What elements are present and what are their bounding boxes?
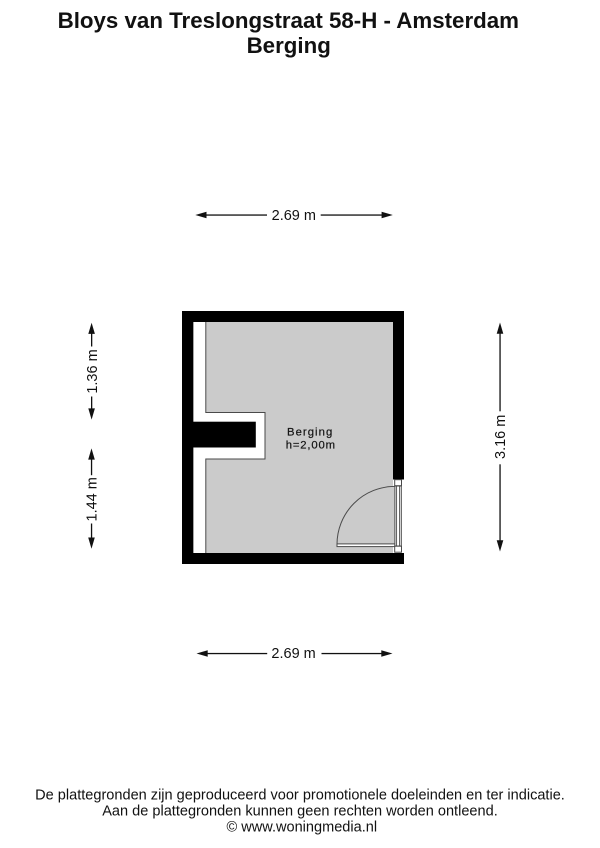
svg-text:1.36 m: 1.36 m [85, 349, 101, 393]
svg-text:Berging: Berging [287, 427, 333, 439]
svg-text:De plattegronden zijn geproduc: De plattegronden zijn geproduceerd voor … [35, 788, 565, 804]
svg-text:Bloys van Treslongstraat 58-H: Bloys van Treslongstraat 58-H - Amsterda… [58, 8, 519, 33]
svg-text:Aan de plattegronden kunnen ge: Aan de plattegronden kunnen geen rechten… [102, 803, 498, 819]
svg-text:© www.woningmedia.nl: © www.woningmedia.nl [226, 820, 377, 836]
svg-text:1.44 m: 1.44 m [85, 477, 101, 521]
svg-text:2.69 m: 2.69 m [272, 208, 316, 224]
svg-text:Berging: Berging [247, 33, 331, 58]
svg-text:3.16 m: 3.16 m [493, 415, 509, 459]
svg-text:h=2,00m: h=2,00m [286, 439, 336, 451]
svg-text:2.69 m: 2.69 m [271, 646, 315, 662]
